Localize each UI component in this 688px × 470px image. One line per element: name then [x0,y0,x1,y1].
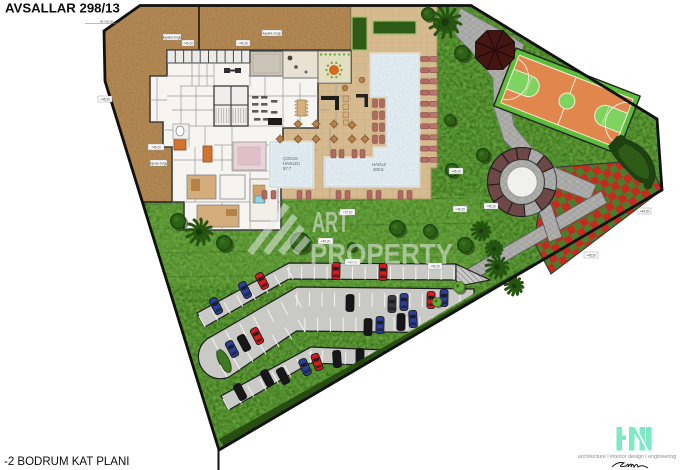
svg-text:200.8: 200.8 [373,167,384,172]
svg-text:-2 BODRUM KAT PLANI: -2 BODRUM KAT PLANI [4,456,129,468]
svg-text:+45.20: +45.20 [451,170,461,174]
svg-text:+45.20: +45.20 [100,98,110,102]
svg-text:PROPERTY: PROPERTY [310,239,453,271]
svg-text:toprak dolgu: toprak dolgu [150,162,168,166]
svg-text:+45.20: +45.20 [183,42,193,46]
svg-text:+45.20: +45.20 [486,205,496,209]
svg-text:+45.20: +45.20 [586,254,596,258]
svg-text:+45.20: +45.20 [640,210,650,214]
svg-text:architecture l interior desig: architecture l interior design l enginee… [578,454,677,460]
svg-text:AVSALLAR 298/13: AVSALLAR 298/13 [5,1,120,16]
svg-text:-94.402.00: -94.402.00 [99,20,114,24]
svg-text:+45.20: +45.20 [238,42,248,46]
svg-text:kayalık dolgu: kayalık dolgu [263,32,282,36]
svg-text:+45.20: +45.20 [151,146,161,150]
svg-text:57.7: 57.7 [283,166,292,171]
svg-text:+45.20: +45.20 [455,208,465,212]
svg-text:kayalık dolgu: kayalık dolgu [163,36,182,40]
svg-text:ART: ART [312,207,349,239]
